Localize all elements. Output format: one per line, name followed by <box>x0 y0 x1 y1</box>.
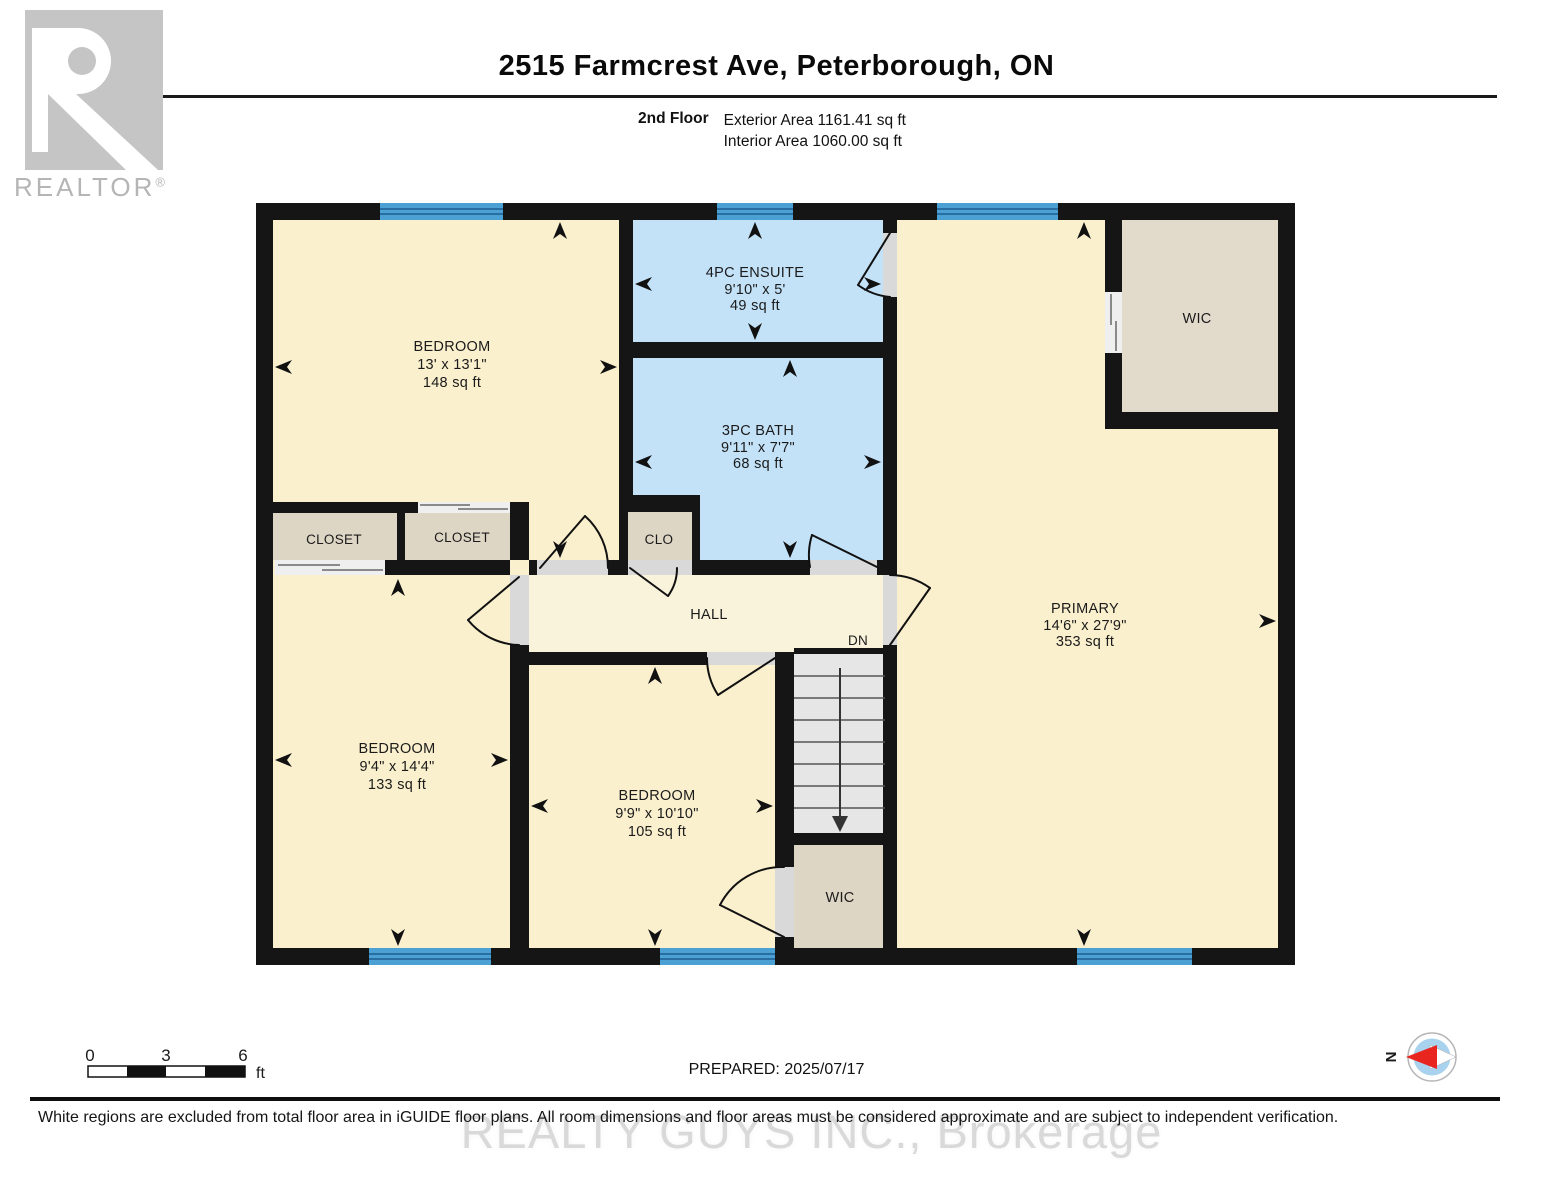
room-label: 3PC BATH <box>722 423 794 439</box>
room-label: BEDROOM <box>413 339 490 355</box>
window <box>937 203 1058 220</box>
room-area: 133 sq ft <box>368 777 426 793</box>
stairs-down-label: DN <box>848 633 868 648</box>
sliding-door <box>275 560 385 575</box>
sliding-door <box>418 502 510 513</box>
realtor-logo-label: REALTOR® <box>14 172 194 203</box>
window <box>380 203 503 220</box>
sliding-door <box>1105 292 1122 353</box>
exterior-area: Exterior Area 1161.41 sq ft <box>724 110 906 131</box>
footer-divider <box>30 1097 1500 1101</box>
room-area: 148 sq ft <box>423 375 481 391</box>
room-area: 49 sq ft <box>730 298 780 314</box>
room-label: CLOSET <box>434 530 490 545</box>
floor-plan-page: REALTY GUYS INC., Brokerage REALTOR® 251… <box>0 0 1553 1200</box>
floor-plan-canvas: BEDROOM 13' x 13'1" 148 sq ft 4PC ENSUIT… <box>0 0 1553 1200</box>
room-label: PRIMARY <box>1051 601 1119 617</box>
room-dims: 14'6" x 27'9" <box>1043 618 1126 634</box>
room-label: WIC <box>825 890 854 906</box>
room-dims: 13' x 13'1" <box>417 357 487 373</box>
window <box>369 948 491 965</box>
room-label: HALL <box>690 607 727 623</box>
room-label: WIC <box>1182 311 1211 327</box>
room-dims: 9'9" x 10'10" <box>615 806 698 822</box>
room-label: CLOSET <box>306 532 362 547</box>
prepared-date: PREPARED: 2025/07/17 <box>0 1061 1553 1079</box>
room-label: 4PC ENSUITE <box>706 265 804 281</box>
room-dims: 9'4" x 14'4" <box>359 759 434 775</box>
room-label: BEDROOM <box>358 741 435 757</box>
disclaimer-text: White regions are excluded from total fl… <box>38 1109 1538 1127</box>
window <box>1077 948 1192 965</box>
page-title: 2515 Farmcrest Ave, Peterborough, ON <box>0 50 1553 83</box>
room-dims: 9'11" x 7'7" <box>721 440 795 456</box>
room-area: 353 sq ft <box>1056 634 1114 650</box>
interior-area: Interior Area 1060.00 sq ft <box>724 131 906 152</box>
room-label: BEDROOM <box>618 788 695 804</box>
room-dims: 9'10" x 5' <box>724 282 785 298</box>
room-area: 105 sq ft <box>628 824 686 840</box>
room-area: 68 sq ft <box>733 456 783 472</box>
floor-label: 2nd Floor <box>638 110 709 152</box>
room-label: CLO <box>645 532 674 547</box>
floor-summary: 2nd Floor Exterior Area 1161.41 sq ft In… <box>638 110 906 152</box>
window <box>717 203 793 220</box>
window <box>660 948 775 965</box>
